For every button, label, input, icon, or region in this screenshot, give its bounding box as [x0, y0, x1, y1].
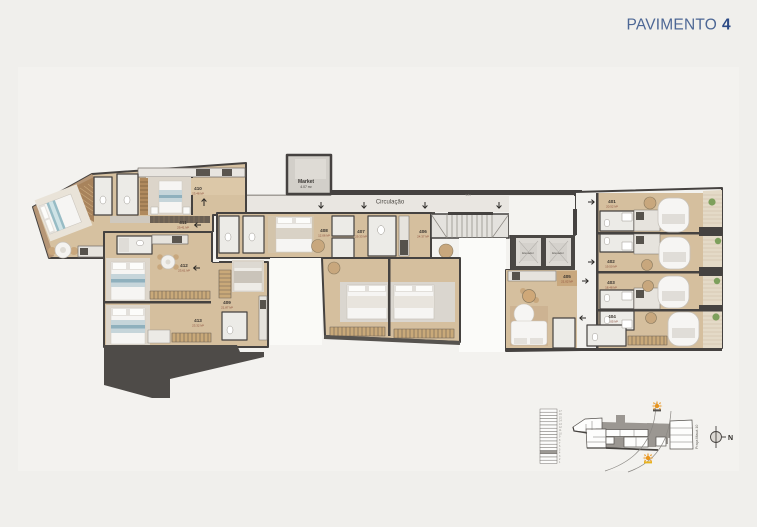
svg-text:Elevador: Elevador — [522, 251, 534, 255]
svg-text:413: 413 — [194, 318, 202, 323]
svg-text:410: 410 — [194, 186, 202, 191]
svg-text:23.48 M²: 23.48 M² — [192, 192, 204, 196]
svg-text:Praça Mauá 10: Praça Mauá 10 — [695, 425, 699, 449]
svg-text:20.52 M²: 20.52 M² — [606, 205, 618, 209]
svg-text:4: 4 — [722, 17, 731, 34]
svg-text:402: 402 — [607, 259, 615, 264]
svg-text:21.87 M²: 21.87 M² — [221, 306, 233, 310]
svg-text:N: N — [728, 435, 733, 442]
svg-text:Elevador: Elevador — [552, 251, 564, 255]
svg-text:23.32 M²: 23.32 M² — [192, 324, 204, 328]
svg-text:23.61 M²: 23.61 M² — [178, 269, 190, 273]
svg-text:411: 411 — [179, 220, 187, 225]
svg-text:18.48 M²: 18.48 M² — [605, 286, 617, 290]
svg-text:408: 408 — [320, 228, 328, 233]
svg-text:29.33 M²: 29.33 M² — [355, 235, 367, 239]
svg-text:412: 412 — [180, 263, 188, 268]
svg-text:Circulação: Circulação — [376, 200, 405, 206]
svg-text:PAVIMENTO: PAVIMENTO — [626, 17, 717, 34]
svg-text:401: 401 — [608, 199, 616, 204]
svg-text:24.37 M²: 24.37 M² — [417, 235, 429, 239]
svg-text:21.02 M²: 21.02 M² — [561, 280, 573, 284]
svg-text:407: 407 — [357, 229, 365, 234]
svg-text:12.06 M²: 12.06 M² — [318, 234, 330, 238]
svg-text:409: 409 — [223, 300, 231, 305]
svg-text:406: 406 — [419, 229, 427, 234]
svg-text:4.07 m²: 4.07 m² — [300, 185, 312, 189]
svg-text:9.84: 9.84 — [465, 193, 471, 197]
svg-text:29.41 M²: 29.41 M² — [177, 226, 189, 230]
svg-text:19.50 M²: 19.50 M² — [605, 265, 617, 269]
svg-text:403: 403 — [607, 280, 615, 285]
svg-text:405: 405 — [563, 274, 571, 279]
